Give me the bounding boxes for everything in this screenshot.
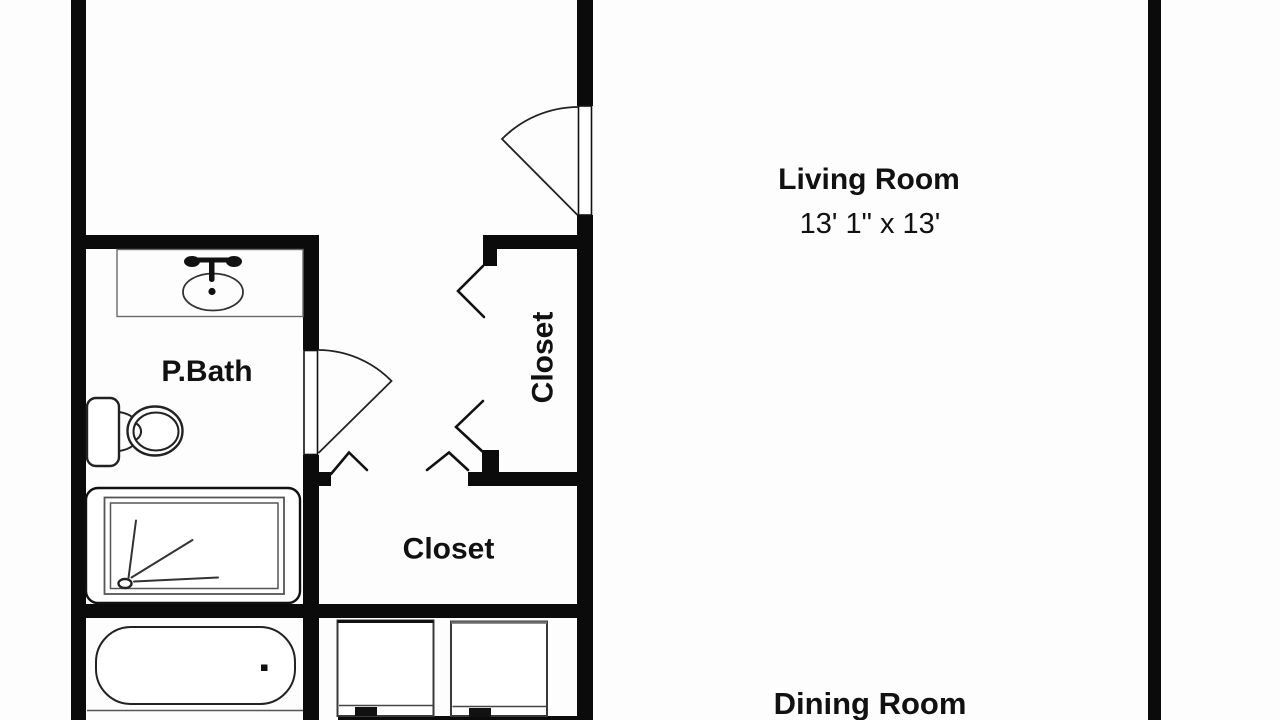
- svg-text:Closet: Closet: [403, 533, 495, 566]
- svg-text:Closet: Closet: [527, 312, 560, 404]
- svg-text:Dining Room: Dining Room: [774, 686, 967, 720]
- svg-text:13' 1" x 13': 13' 1" x 13': [800, 208, 941, 240]
- svg-text:Living Room: Living Room: [778, 163, 960, 196]
- svg-text:P.Bath: P.Bath: [161, 355, 252, 388]
